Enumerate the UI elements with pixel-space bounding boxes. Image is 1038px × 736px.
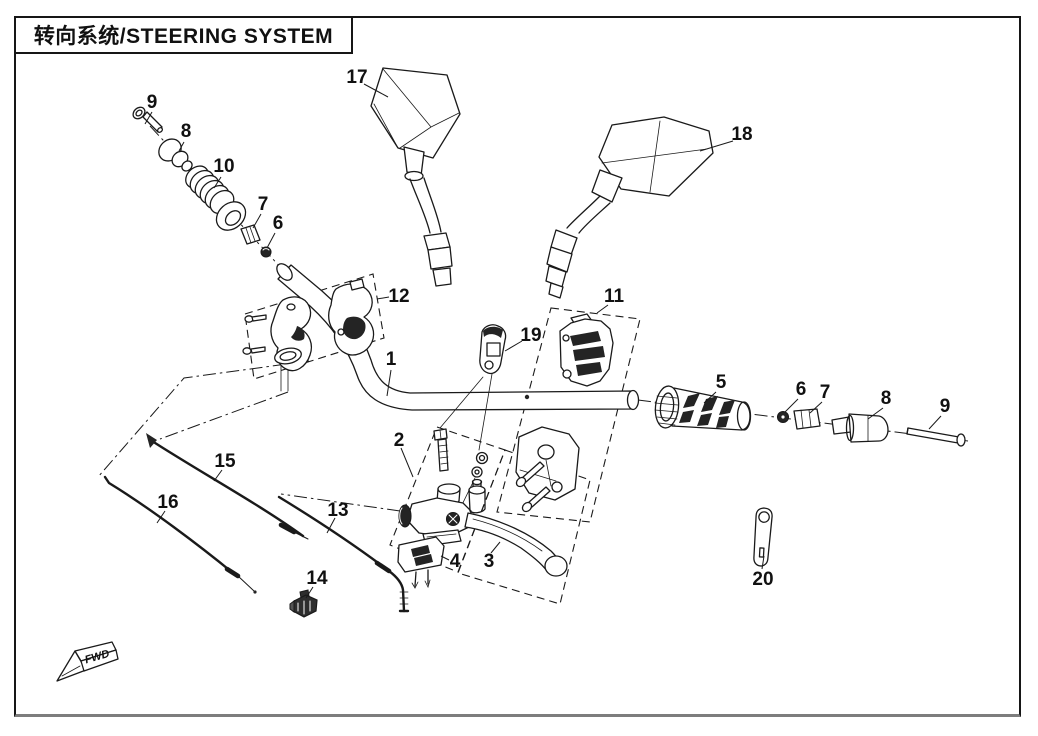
pin-20-drawing (753, 508, 772, 567)
callout-5: 5 (716, 372, 727, 393)
page-title: 转向系统/STEERING SYSTEM (34, 20, 333, 50)
steering-system-diagram: FWD (0, 0, 1038, 736)
fwd-marker: FWD (57, 642, 118, 681)
grip-right-drawing (653, 385, 750, 430)
callout-16: 16 (157, 492, 178, 513)
callout-10: 10 (213, 156, 234, 177)
lever-drawing (465, 513, 567, 576)
right-bar-end-parts (778, 409, 966, 446)
callout-6-left: 6 (273, 213, 284, 234)
callout-4: 4 (450, 551, 461, 572)
leader-lines (145, 84, 941, 598)
callout-17: 17 (346, 67, 367, 88)
callout-20: 20 (752, 569, 773, 590)
parts-catalog-page: 转向系统/STEERING SYSTEM (0, 0, 1038, 736)
callout-8-left: 8 (181, 121, 192, 142)
callout-9-right: 9 (940, 396, 951, 417)
cable-16-drawing (105, 477, 257, 594)
mirror-left-drawing (371, 68, 460, 286)
callout-1: 1 (386, 349, 397, 370)
mirror-right-drawing (546, 117, 713, 298)
bolt-right-drawing (907, 428, 965, 446)
bar-end-weight-right-drawing (832, 414, 888, 442)
callout-18: 18 (731, 124, 752, 145)
callout-12: 12 (388, 286, 409, 307)
callout-11: 11 (604, 286, 625, 307)
callout-13: 13 (327, 500, 348, 521)
callout-9-left: 9 (147, 92, 158, 113)
callout-8-right: 8 (881, 388, 892, 409)
nut-right-drawing (778, 412, 789, 423)
callout-15: 15 (214, 451, 236, 472)
nut-left-drawing (261, 247, 271, 257)
callout-3: 3 (484, 551, 495, 572)
callout-6-right: 6 (796, 379, 807, 400)
title-box: 转向系统/STEERING SYSTEM (14, 16, 353, 54)
sleeve-left-drawing (241, 225, 260, 244)
routing-lines (98, 361, 400, 511)
callout-7-right: 7 (820, 382, 831, 403)
callout-7-left: 7 (258, 194, 269, 215)
connector-14-drawing (290, 590, 317, 617)
sleeve-right-drawing (794, 409, 820, 429)
switch-drawing (398, 537, 444, 588)
callout-19: 19 (520, 325, 541, 346)
callout-14: 14 (306, 568, 328, 589)
callout-2: 2 (394, 430, 405, 451)
